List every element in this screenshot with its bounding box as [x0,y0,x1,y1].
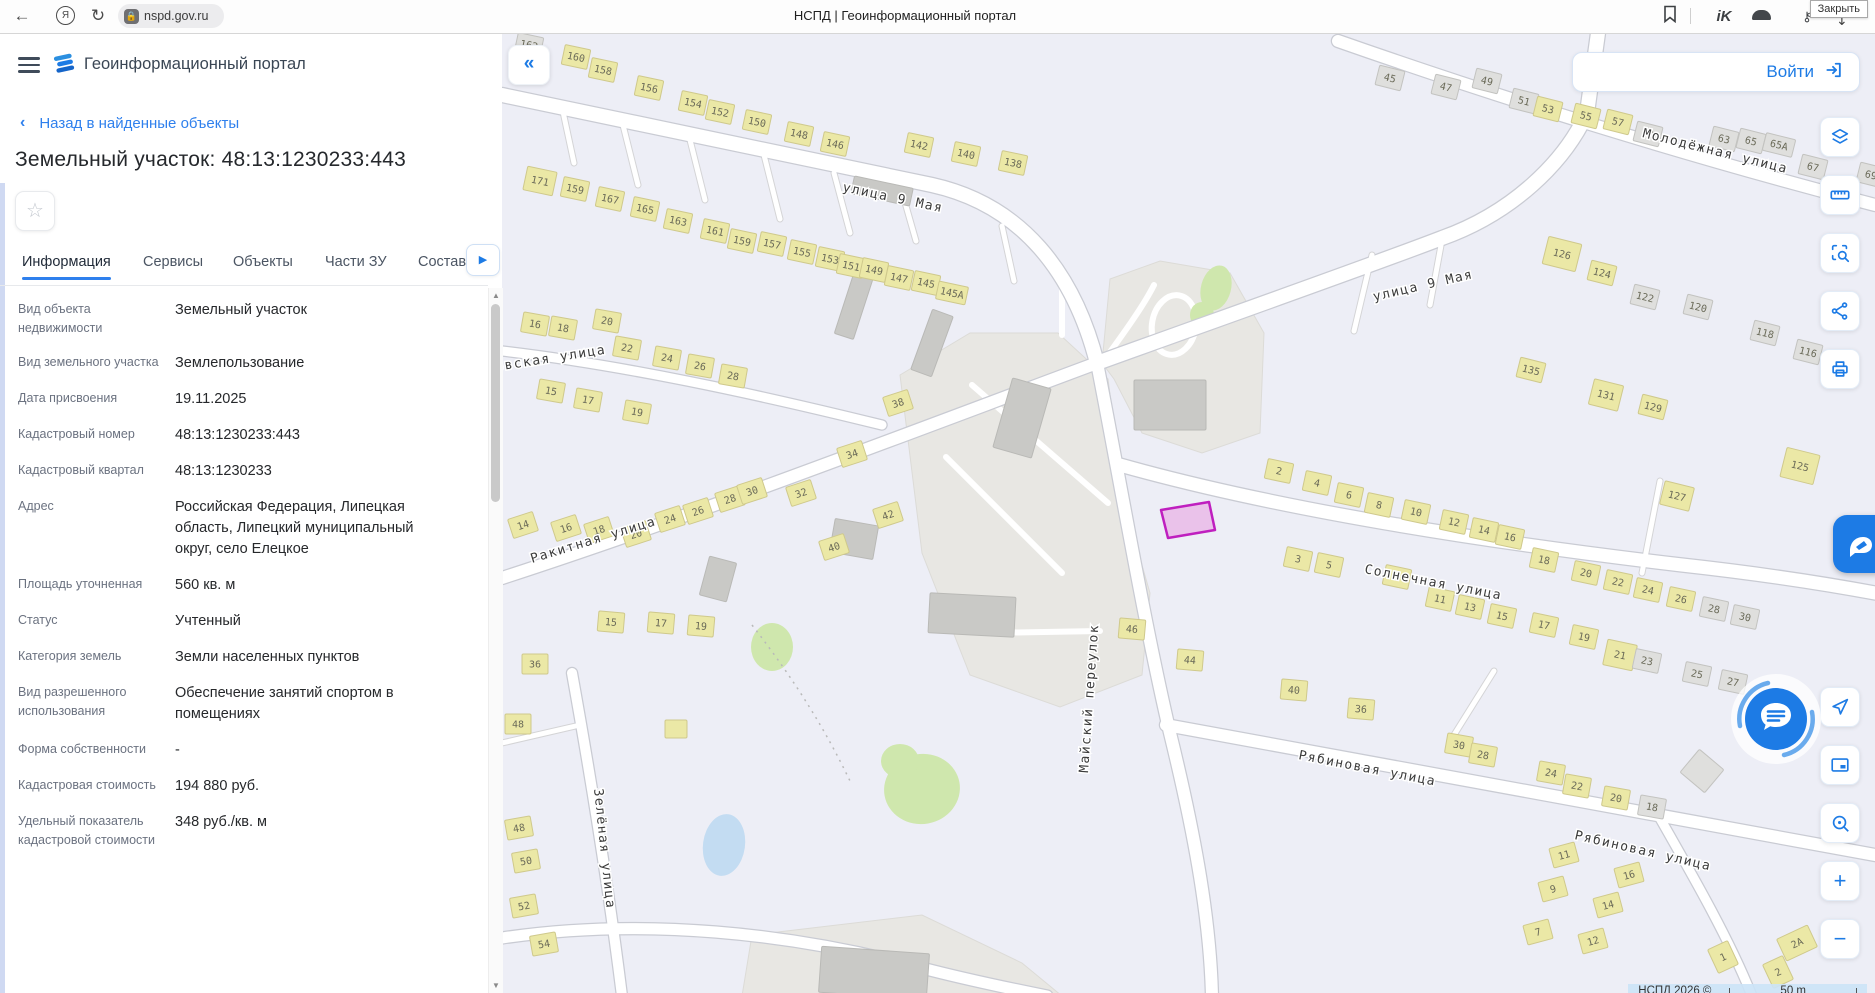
share-icon [1829,300,1851,322]
field-label: Категория земель [18,647,160,668]
svg-text:20: 20 [1609,793,1623,806]
svg-text:48: 48 [512,720,524,731]
field-row: Вид земельного участкаЗемлепользование [0,353,488,374]
map-graphics: 1621601581561541521501481461421401381711… [502,33,1875,993]
login-icon [1823,60,1845,85]
scroll-down-icon[interactable]: ▼ [489,981,503,990]
field-value: Земли населенных пунктов [175,647,447,668]
svg-text:26: 26 [693,361,707,374]
map-tools-bottom: +− [1820,687,1858,977]
svg-text:54: 54 [537,939,551,952]
svg-text:16: 16 [528,319,542,332]
tabs-overflow-button[interactable]: ▶ [466,244,500,276]
login-button[interactable]: Войти [1572,52,1860,92]
svg-text:18: 18 [1645,802,1659,815]
field-row: Категория земельЗемли населенных пунктов [0,647,488,668]
tab-3[interactable]: Объекты [233,254,293,270]
field-row: Кадастровый номер48:13:1230233:443 [0,425,488,446]
panel-scrollbar[interactable]: ▲ ▼ [488,288,503,993]
layers-button[interactable] [1820,117,1860,157]
field-label: Кадастровая стоимость [18,776,160,797]
search-location-button[interactable] [1820,803,1860,843]
print-button[interactable] [1820,349,1860,389]
svg-text:36: 36 [1354,704,1367,716]
field-label: Удельный показатель кадастровой стоимост… [18,812,160,850]
nspd-logo [52,51,76,75]
chevron-left-icon: ‹ [20,114,25,132]
field-row: Площадь уточненная560 кв. м [0,575,488,596]
field-label: Кадастровый номер [18,425,160,446]
svg-text:46: 46 [1125,624,1138,636]
chat-button[interactable] [1728,671,1824,767]
lock-icon: 🔒 [124,9,139,24]
svg-text:40: 40 [1287,685,1300,697]
svg-text:30: 30 [1452,740,1466,753]
back-link-label: Назад в найденные объекты [39,115,239,132]
back-to-results-link[interactable]: ‹ Назад в найденные объекты [20,114,239,132]
navigate-icon [1829,696,1851,718]
field-row: Дата присвоения19.11.2025 [0,389,488,410]
zoom-in-icon: + [1834,870,1847,892]
close-tooltip: Закрыть [1810,0,1868,18]
svg-text:52: 52 [517,901,531,914]
svg-text:15: 15 [544,386,558,399]
field-row: СтатусУчтенный [0,611,488,632]
svg-text:15: 15 [604,617,617,629]
url-text: nspd.gov.ru [144,9,208,23]
field-value: Российская Федерация, Липецкая область, … [175,497,447,560]
back-icon[interactable]: ← [10,4,34,28]
share-button[interactable] [1820,291,1860,331]
extension-shield-icon[interactable] [1752,10,1771,20]
tab-1[interactable]: Информация [22,254,111,270]
browser-tab-title: НСПД | Геоинформационный портал [794,8,1016,23]
login-label: Войти [1766,62,1814,82]
menu-icon[interactable] [18,57,40,73]
map-canvas[interactable]: 1621601581561541521501481461421401381711… [502,33,1875,993]
field-label: Площадь уточненная [18,575,160,596]
field-value: - [175,740,447,761]
application-window: { "browser": { "url": "nspd.gov.ru", "pa… [0,0,1875,993]
object-info-panel: Геоинформационный портал ‹ Назад в найде… [0,33,502,993]
assistant-button[interactable] [1833,515,1875,573]
layers-icon [1829,126,1851,148]
field-row: Форма собственности- [0,740,488,761]
ruler-icon [1829,184,1851,206]
field-value: 348 руб./кв. м [175,812,447,850]
svg-text:19: 19 [694,621,707,633]
field-value: Обеспечение занятий спортом в помещениях [175,683,447,725]
field-label: Статус [18,611,160,632]
field-row: АдресРоссийская Федерация, Липецкая обла… [0,497,488,560]
field-label: Дата присвоения [18,389,160,410]
svg-text:36: 36 [529,660,541,671]
field-row: Кадастровый квартал48:13:1230233 [0,461,488,482]
chrome-divider [1690,8,1691,24]
extension-k-icon[interactable]: iK [1712,5,1736,29]
field-row: Удельный показатель кадастровой стоимост… [0,812,488,850]
print-icon [1829,358,1851,380]
attribution-text: НСПД 2026 © [1638,985,1711,993]
map-scale: 50 m [1729,985,1857,993]
svg-text:22: 22 [620,343,634,356]
svg-text:24: 24 [1544,768,1558,781]
zoom-out-button[interactable]: − [1820,919,1860,959]
field-value: 48:13:1230233 [175,461,447,482]
svg-text:48: 48 [512,823,526,836]
zoom-in-button[interactable]: + [1820,861,1860,901]
panel-tabs: ▶ ИнформацияСервисыОбъектыЧасти ЗУСостав [0,251,488,286]
bookmark-icon[interactable] [1658,5,1682,30]
object-title: Земельный участок: 48:13:1230233:443 [15,148,406,172]
select-search-button[interactable] [1820,233,1860,273]
navigate-button[interactable] [1820,687,1860,727]
object-fields: Вид объекта недвижимостиЗемельный участо… [0,286,488,993]
field-label: Форма собственности [18,740,160,761]
svg-text:22: 22 [1570,781,1584,794]
field-label: Вид объекта недвижимости [18,300,160,338]
ruler-button[interactable] [1820,175,1860,215]
collapse-panel-button[interactable]: « [508,45,550,85]
field-value: 194 880 руб. [175,776,447,797]
tab-2[interactable]: Сервисы [143,254,203,270]
address-bar[interactable]: 🔒 nspd.gov.ru [118,4,224,28]
field-value: Учтенный [175,611,447,632]
mini-map-icon [1829,754,1851,776]
svg-text:18: 18 [556,323,570,336]
portal-title: Геоинформационный портал [84,55,306,74]
zoom-out-icon: − [1834,928,1847,950]
field-value: 19.11.2025 [175,389,447,410]
scrollbar-thumb[interactable] [491,304,500,502]
field-value: Землепользование [175,353,447,374]
svg-text:28: 28 [1476,750,1490,763]
profile-icon[interactable]: Я [56,6,75,25]
svg-text:17: 17 [581,395,595,408]
favorite-star-button[interactable]: ☆ [15,191,55,231]
field-label: Вид разрешенного использования [18,683,160,725]
field-row: Вид объекта недвижимостиЗемельный участо… [0,300,488,338]
field-value: Земельный участок [175,300,447,338]
field-value: 48:13:1230233:443 [175,425,447,446]
svg-text:28: 28 [726,371,740,384]
scale-label: 50 m [1780,985,1806,993]
svg-text:24: 24 [660,353,674,366]
map-attribution: НСПД 2026 © 50 m [1628,984,1867,993]
svg-text:20: 20 [600,316,614,329]
svg-text:50: 50 [519,856,533,869]
map-tools-top [1820,117,1858,407]
field-value: 560 кв. м [175,575,447,596]
svg-text:19: 19 [630,407,644,420]
field-row: Кадастровая стоимость194 880 руб. [0,776,488,797]
field-label: Вид земельного участка [18,353,160,374]
tab-5[interactable]: Состав [418,254,466,270]
tab-4[interactable]: Части ЗУ [325,254,387,270]
svg-text:17: 17 [654,618,667,630]
field-label: Кадастровый квартал [18,461,160,482]
mini-map-button[interactable] [1820,745,1860,785]
field-row: Вид разрешенного использованияОбеспечени… [0,683,488,725]
svg-text:44: 44 [1183,655,1196,667]
refresh-icon[interactable]: ↻ [86,4,110,28]
field-label: Адрес [18,497,160,560]
search-location-icon [1829,812,1851,834]
browser-chrome: ← Я ↻ 🔒 nspd.gov.ru НСПД | Геоинформацио… [0,0,1875,34]
select-search-icon [1829,242,1851,264]
scroll-up-icon[interactable]: ▲ [489,291,503,300]
